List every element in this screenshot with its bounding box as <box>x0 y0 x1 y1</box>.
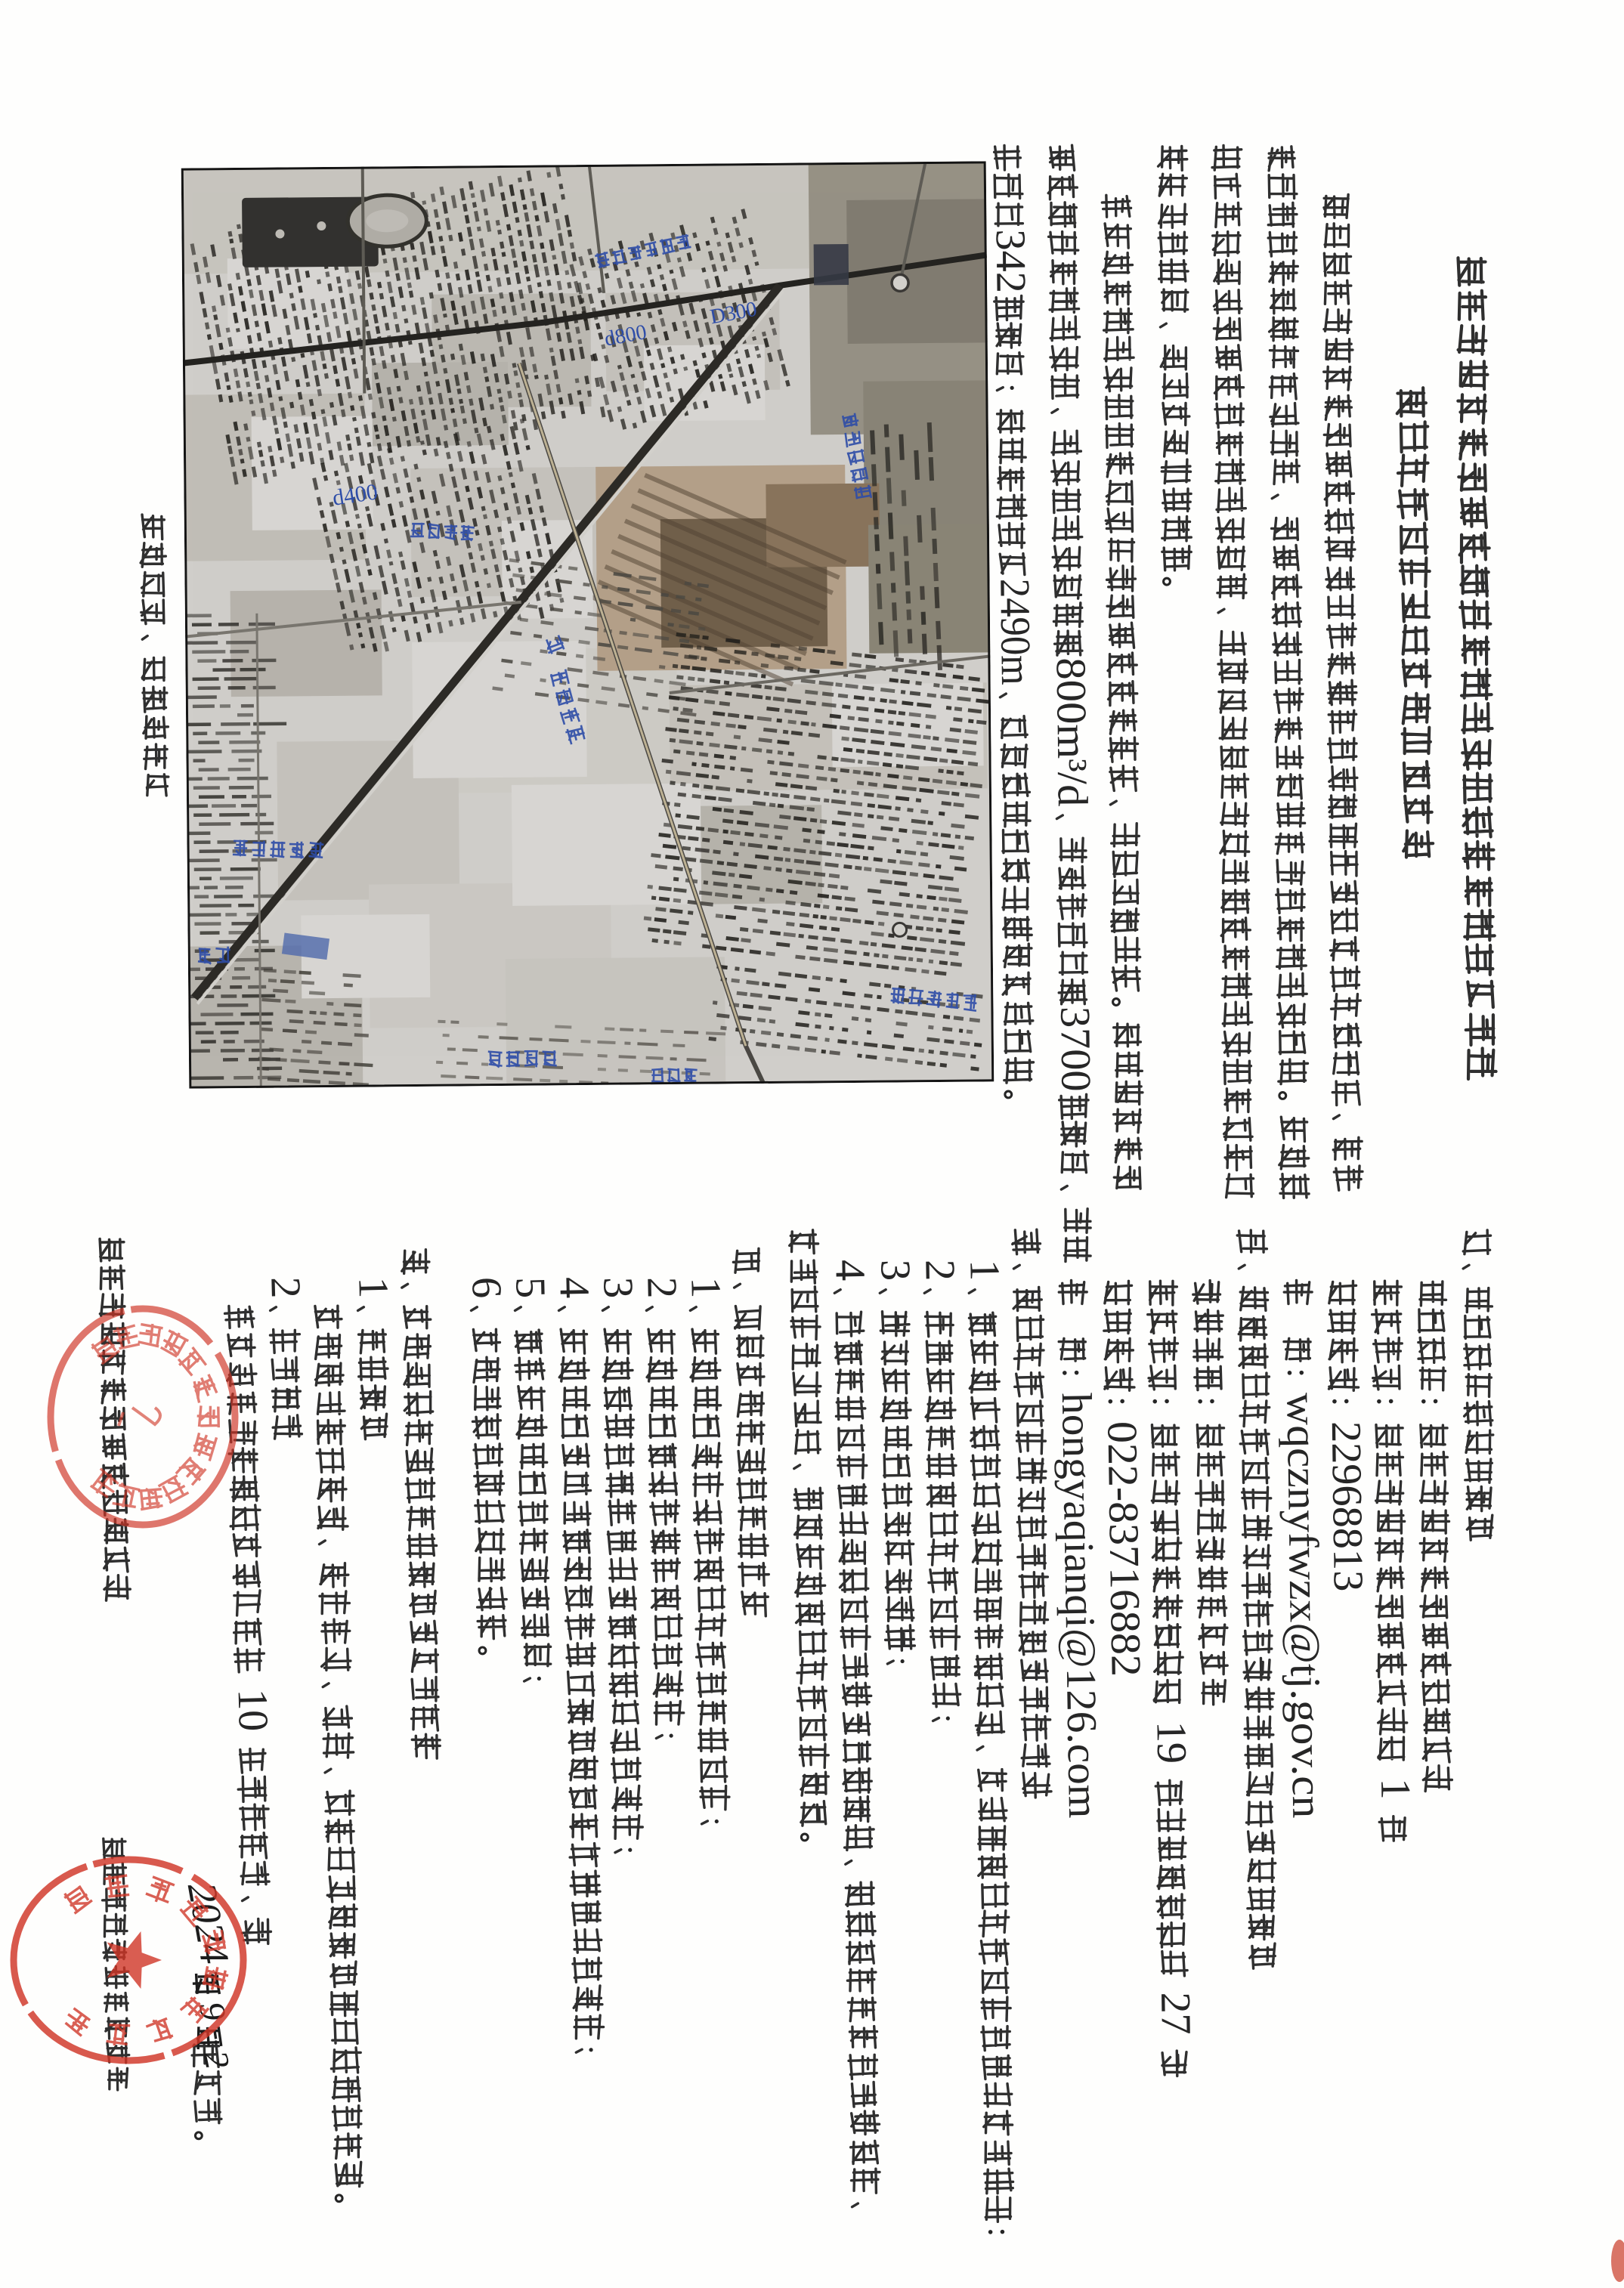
svg-text:22968813: 22968813 <box>1322 1421 1368 1592</box>
svg-text:2: 2 <box>917 1259 964 1281</box>
svg-text:10: 10 <box>228 1688 277 1732</box>
svg-text:27: 27 <box>1152 1992 1196 2035</box>
svg-text:19: 19 <box>1147 1721 1195 1764</box>
svg-text:6: 6 <box>463 1276 510 1299</box>
svg-text:1: 1 <box>682 1276 729 1298</box>
svg-text:022-83716882: 022-83716882 <box>1098 1421 1145 1677</box>
svg-text:800m³/d: 800m³/d <box>1047 657 1096 807</box>
svg-text:4: 4 <box>551 1276 598 1298</box>
svg-text:342: 342 <box>987 229 1035 293</box>
svg-text:hongyaqianqi@126.com: hongyaqianqi@126.com <box>1053 1393 1103 1819</box>
svg-text:3: 3 <box>595 1276 642 1298</box>
svg-text:2: 2 <box>262 1276 309 1299</box>
svg-text:1: 1 <box>961 1260 1008 1282</box>
svg-text:4: 4 <box>827 1259 874 1281</box>
svg-text:3700: 3700 <box>1051 1006 1097 1092</box>
svg-text:2490m: 2490m <box>991 578 1039 685</box>
svg-text:1: 1 <box>350 1276 396 1299</box>
svg-text:wqcznyfwzx@tj.gov.cn: wqcznyfwzx@tj.gov.cn <box>1277 1393 1326 1819</box>
svg-text:2: 2 <box>639 1276 685 1298</box>
svg-text:1: 1 <box>1372 1778 1415 1800</box>
svg-text:3: 3 <box>872 1259 919 1281</box>
svg-text:5: 5 <box>507 1276 554 1298</box>
